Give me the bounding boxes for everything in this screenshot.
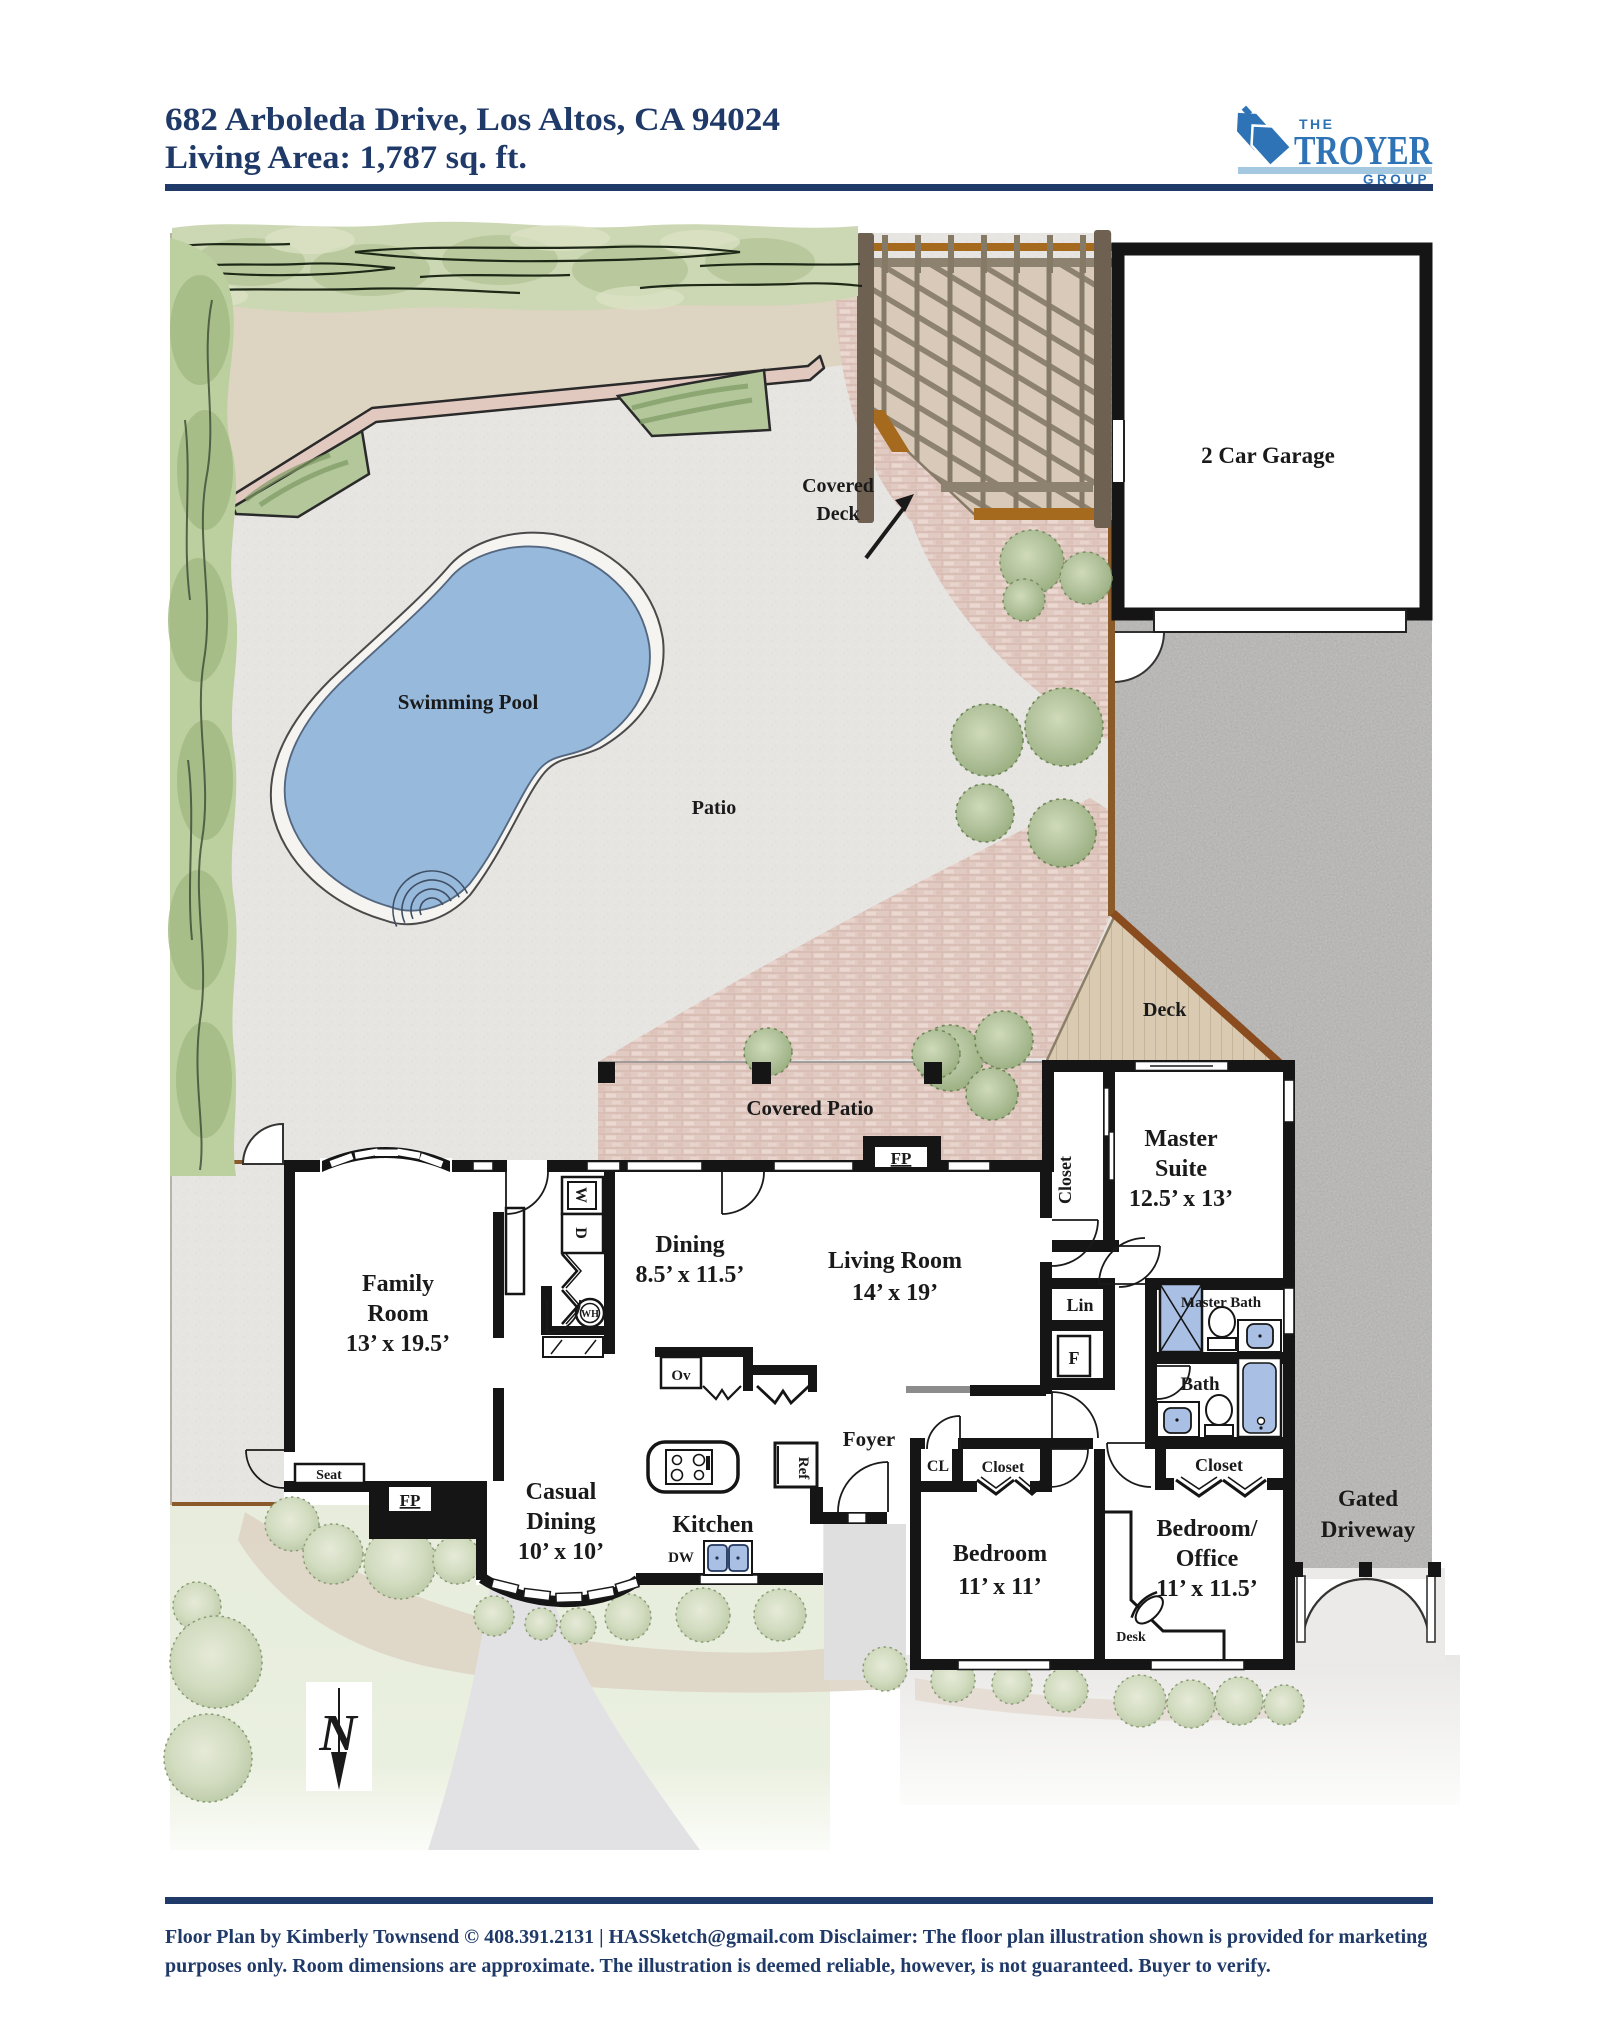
svg-text:Deck: Deck (1143, 999, 1187, 1021)
svg-text:Driveway: Driveway (1321, 1517, 1416, 1542)
svg-text:Closet: Closet (1195, 1455, 1243, 1475)
svg-text:WH: WH (581, 1309, 599, 1320)
svg-text:Casual: Casual (526, 1479, 597, 1505)
svg-text:Floor Plan by Kimberly Townsen: Floor Plan by Kimberly Townsend © 408.39… (165, 1926, 1427, 1948)
svg-text:Seat: Seat (316, 1468, 342, 1483)
svg-text:12.5’ x 13’: 12.5’ x 13’ (1129, 1186, 1233, 1212)
svg-text:Master Bath: Master Bath (1181, 1295, 1262, 1311)
svg-text:TROYER: TROYER (1294, 127, 1432, 173)
svg-text:W: W (572, 1187, 589, 1203)
svg-text:14’ x 19’: 14’ x 19’ (852, 1280, 938, 1306)
svg-text:D: D (572, 1227, 589, 1239)
svg-text:Foyer: Foyer (843, 1427, 895, 1451)
svg-text:Gated: Gated (1338, 1486, 1398, 1511)
svg-text:Family: Family (362, 1271, 434, 1297)
svg-text:11’ x 11.5’: 11’ x 11.5’ (1156, 1576, 1258, 1602)
svg-text:Room: Room (367, 1301, 428, 1327)
svg-text:purposes only. Room dimensions: purposes only. Room dimensions are appro… (165, 1955, 1271, 1977)
svg-text:Closet: Closet (982, 1459, 1025, 1476)
svg-text:Living Area: 1,787 sq. ft.: Living Area: 1,787 sq. ft. (165, 140, 527, 176)
svg-text:Bath: Bath (1180, 1374, 1220, 1395)
svg-text:Closet: Closet (1055, 1156, 1075, 1204)
svg-text:8.5’ x 11.5’: 8.5’ x 11.5’ (636, 1262, 745, 1288)
svg-text:Office: Office (1176, 1546, 1239, 1572)
svg-text:Lin: Lin (1066, 1295, 1093, 1315)
svg-text:Desk: Desk (1116, 1630, 1146, 1645)
svg-text:Dining: Dining (655, 1232, 724, 1258)
svg-text:FP: FP (400, 1491, 421, 1510)
svg-text:Ov: Ov (671, 1368, 691, 1384)
svg-text:Patio: Patio (692, 797, 736, 819)
svg-text:11’ x 11’: 11’ x 11’ (958, 1574, 1042, 1600)
svg-text:10’ x 10’: 10’ x 10’ (518, 1539, 604, 1565)
svg-text:Living Room: Living Room (828, 1248, 962, 1274)
svg-text:Covered Patio: Covered Patio (746, 1096, 873, 1120)
svg-text:Suite: Suite (1155, 1156, 1207, 1182)
svg-text:Kitchen: Kitchen (672, 1512, 753, 1538)
svg-text:DW: DW (668, 1550, 694, 1566)
svg-text:682 Arboleda Drive, Los Altos,: 682 Arboleda Drive, Los Altos, CA 94024 (165, 102, 780, 138)
svg-text:Ref: Ref (795, 1457, 811, 1480)
svg-text:Master: Master (1144, 1126, 1218, 1152)
svg-text:Deck: Deck (816, 503, 860, 525)
svg-text:GROUP: GROUP (1363, 172, 1430, 187)
svg-text:FP: FP (891, 1149, 912, 1168)
svg-text:Bedroom/: Bedroom/ (1157, 1516, 1258, 1542)
svg-text:Swimming Pool: Swimming Pool (398, 690, 539, 714)
svg-text:Bedroom: Bedroom (953, 1541, 1047, 1567)
svg-text:13’ x 19.5’: 13’ x 19.5’ (346, 1331, 450, 1357)
svg-text:Covered: Covered (802, 475, 874, 497)
svg-text:2 Car Garage: 2 Car Garage (1201, 443, 1335, 468)
svg-text:F: F (1069, 1348, 1080, 1368)
svg-text:CL: CL (927, 1458, 949, 1475)
svg-text:Dining: Dining (526, 1509, 595, 1535)
